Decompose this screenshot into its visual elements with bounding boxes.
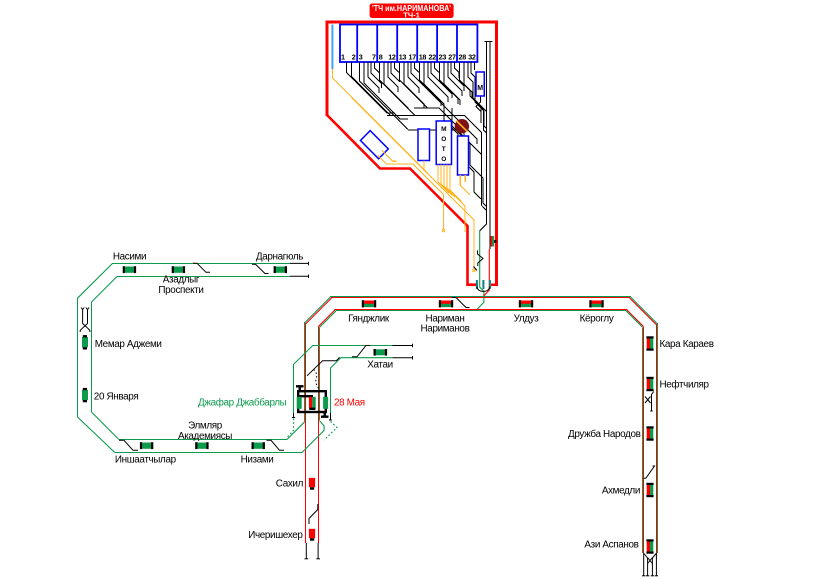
svg-text:Кара Караев: Кара Караев: [660, 339, 714, 350]
svg-text:28 Мая: 28 Мая: [334, 398, 365, 409]
svg-text:Кёроглу: Кёроглу: [580, 314, 614, 325]
svg-text:2: 2: [352, 53, 356, 62]
svg-text:Низами: Низами: [241, 455, 274, 466]
svg-text:Т: Т: [442, 146, 446, 153]
svg-text:Ичеришехер: Ичеришехер: [248, 530, 303, 541]
svg-text:17: 17: [409, 53, 417, 62]
svg-text:1: 1: [341, 53, 345, 62]
svg-text:Ази Аспанов: Ази Аспанов: [584, 540, 638, 551]
svg-text:Джафар Джаббарлы: Джафар Джаббарлы: [198, 398, 287, 409]
svg-text:23: 23: [439, 53, 447, 62]
svg-text:20 Января: 20 Января: [94, 392, 139, 403]
svg-text:М: М: [441, 126, 446, 133]
svg-text:Гянджлик: Гянджлик: [348, 314, 390, 325]
svg-text:Насими: Насими: [113, 252, 146, 263]
svg-text:М: М: [477, 85, 483, 92]
svg-text:Дружба Народов: Дружба Народов: [568, 429, 641, 440]
svg-text:28: 28: [459, 53, 467, 62]
svg-text:Дарнагюль: Дарнагюль: [256, 252, 303, 263]
svg-text:Нефтчиляр: Нефтчиляр: [660, 380, 710, 391]
svg-text:Улдуз: Улдуз: [514, 314, 540, 325]
svg-text:Иншаатчылар: Иншаатчылар: [115, 455, 177, 466]
svg-text:8: 8: [379, 53, 383, 62]
svg-text:ТЧ-1: ТЧ-1: [403, 10, 420, 19]
svg-text:12: 12: [388, 53, 396, 62]
svg-text:Мемар Аджеми: Мемар Аджеми: [95, 339, 162, 350]
svg-text:О: О: [441, 156, 446, 163]
svg-text:Ахмедли: Ахмедли: [602, 486, 640, 497]
svg-text:О: О: [441, 136, 446, 143]
svg-text:Хатаи: Хатаи: [367, 360, 393, 371]
svg-text:7: 7: [372, 53, 376, 62]
svg-text:Проспекти: Проспекти: [158, 285, 203, 296]
svg-text:13: 13: [399, 53, 407, 62]
svg-text:Академиясы: Академиясы: [178, 431, 232, 442]
svg-text:Нариманов: Нариманов: [421, 324, 470, 335]
svg-text:22: 22: [429, 53, 437, 62]
svg-text:32: 32: [468, 53, 476, 62]
svg-text:18: 18: [419, 53, 427, 62]
svg-text:3: 3: [359, 53, 363, 62]
svg-text:Сахил: Сахил: [276, 479, 304, 490]
svg-text:27: 27: [448, 53, 456, 62]
